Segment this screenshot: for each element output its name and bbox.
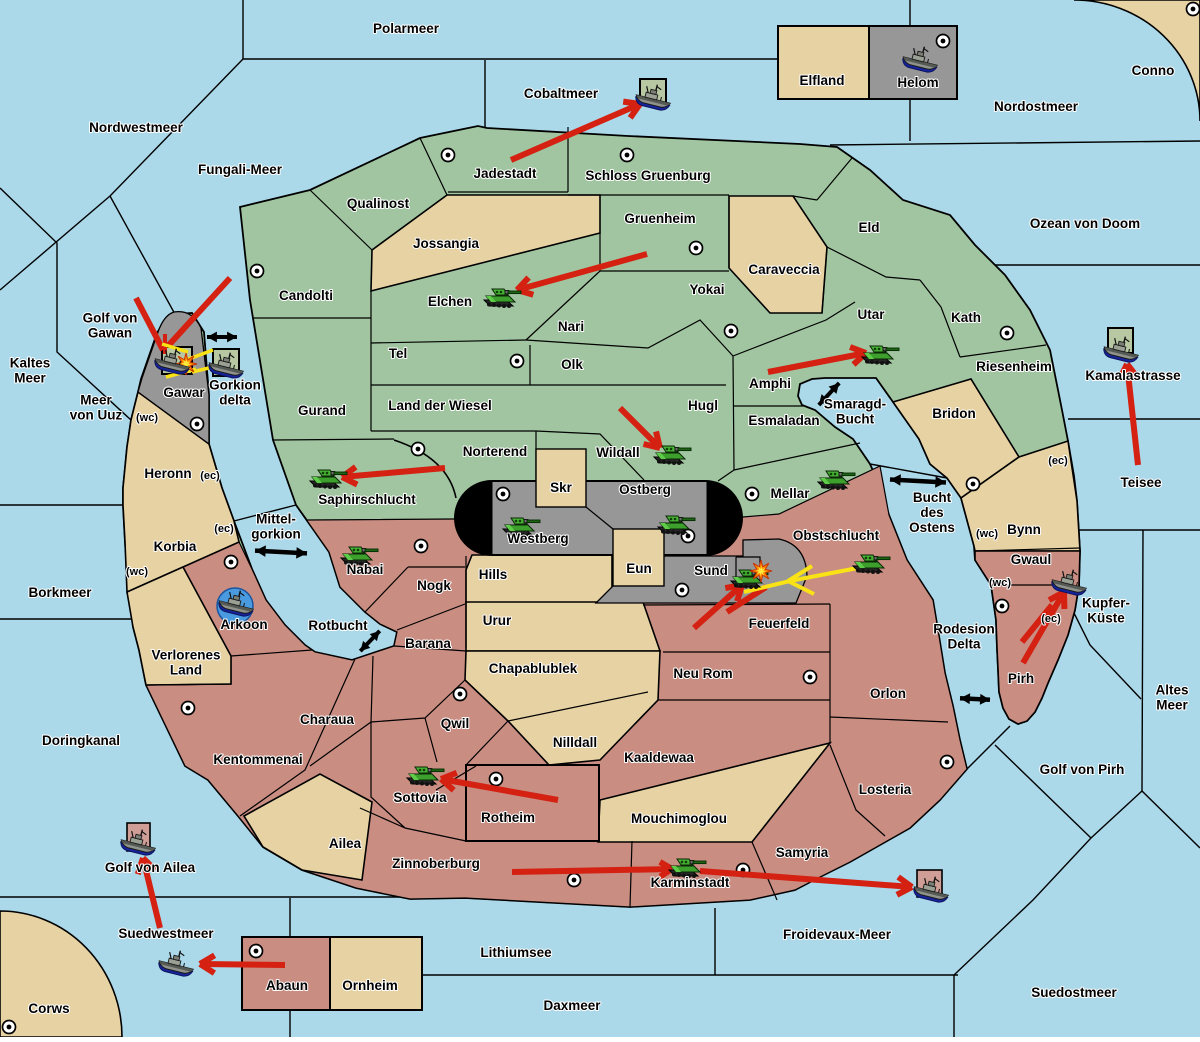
svg-text:Skr: Skr xyxy=(550,480,573,495)
svg-text:Jossangia: Jossangia xyxy=(413,236,480,251)
svg-text:Arkoon: Arkoon xyxy=(220,617,267,632)
svg-text:Riesenheim: Riesenheim xyxy=(976,359,1052,374)
svg-text:(ec): (ec) xyxy=(1048,455,1068,467)
svg-text:Elfland: Elfland xyxy=(799,73,844,88)
svg-text:Doringkanal: Doringkanal xyxy=(42,733,120,748)
svg-text:Westberg: Westberg xyxy=(507,531,568,546)
svg-text:Chapablublek: Chapablublek xyxy=(489,661,578,676)
svg-text:Gwaul: Gwaul xyxy=(1011,552,1052,567)
svg-text:Sund: Sund xyxy=(694,563,728,578)
svg-text:Kaaldewaa: Kaaldewaa xyxy=(624,750,694,765)
svg-text:Gruenheim: Gruenheim xyxy=(624,211,695,226)
svg-text:Wildall: Wildall xyxy=(596,445,639,460)
svg-text:Ornheim: Ornheim xyxy=(342,978,398,993)
svg-text:Abaun: Abaun xyxy=(266,978,308,993)
svg-text:Losteria: Losteria xyxy=(859,782,912,797)
svg-text:Polarmeer: Polarmeer xyxy=(373,21,440,36)
svg-text:Schloss Gruenburg: Schloss Gruenburg xyxy=(585,168,710,183)
svg-text:Nari: Nari xyxy=(558,319,584,334)
svg-text:Pirh: Pirh xyxy=(1008,671,1034,686)
svg-text:Norterend: Norterend xyxy=(463,444,528,459)
svg-text:Feuerfeld: Feuerfeld xyxy=(749,616,810,631)
svg-text:Hills: Hills xyxy=(479,567,508,582)
svg-text:Tel: Tel xyxy=(389,346,408,361)
svg-text:Qwil: Qwil xyxy=(441,716,470,731)
svg-text:Daxmeer: Daxmeer xyxy=(543,998,601,1013)
svg-text:Gawar: Gawar xyxy=(163,385,205,400)
svg-text:Bynn: Bynn xyxy=(1007,522,1041,537)
svg-text:Qualinost: Qualinost xyxy=(347,196,410,211)
svg-text:Nordostmeer: Nordostmeer xyxy=(994,99,1079,114)
svg-text:Kentommenai: Kentommenai xyxy=(213,752,302,767)
svg-text:Gurand: Gurand xyxy=(298,403,346,418)
svg-text:Froidevaux-Meer: Froidevaux-Meer xyxy=(783,927,892,942)
svg-text:Jadestadt: Jadestadt xyxy=(473,166,537,181)
svg-text:AltesMeer: AltesMeer xyxy=(1155,683,1188,713)
svg-text:Golf vonGawan: Golf vonGawan xyxy=(83,311,138,341)
svg-text:(wc): (wc) xyxy=(136,412,158,424)
svg-text:Teisee: Teisee xyxy=(1120,475,1162,490)
svg-text:Borkmeer: Borkmeer xyxy=(28,585,92,600)
svg-text:Utar: Utar xyxy=(857,307,885,322)
svg-text:Saphirschlucht: Saphirschlucht xyxy=(318,492,416,507)
svg-text:Neu Rom: Neu Rom xyxy=(673,666,732,681)
svg-text:(ec): (ec) xyxy=(214,523,234,535)
svg-text:Elchen: Elchen xyxy=(428,294,472,309)
svg-text:Nilldall: Nilldall xyxy=(553,735,597,750)
svg-text:Amphi: Amphi xyxy=(749,376,791,391)
svg-text:Kamalastrasse: Kamalastrasse xyxy=(1085,368,1181,383)
svg-text:Nabai: Nabai xyxy=(347,562,384,577)
svg-text:Nogk: Nogk xyxy=(417,578,451,593)
svg-text:Orlon: Orlon xyxy=(870,686,906,701)
svg-text:Land der Wiesel: Land der Wiesel xyxy=(388,398,491,413)
svg-text:Olk: Olk xyxy=(561,357,583,372)
svg-text:(ec): (ec) xyxy=(1041,613,1061,625)
svg-text:Charaua: Charaua xyxy=(300,712,355,727)
svg-text:KaltesMeer: KaltesMeer xyxy=(10,356,51,386)
svg-text:Helom: Helom xyxy=(897,75,938,90)
svg-text:Mittel-gorkion: Mittel-gorkion xyxy=(251,512,301,542)
svg-text:Ostberg: Ostberg xyxy=(619,482,671,497)
svg-text:Eun: Eun xyxy=(626,561,652,576)
svg-text:Mouchimoglou: Mouchimoglou xyxy=(631,811,727,826)
svg-text:Kath: Kath xyxy=(951,310,981,325)
svg-text:Ailea: Ailea xyxy=(329,836,362,851)
svg-text:Corws: Corws xyxy=(28,1001,69,1016)
svg-text:Eld: Eld xyxy=(858,220,879,235)
svg-text:Candolti: Candolti xyxy=(279,288,333,303)
svg-text:Suedwestmeer: Suedwestmeer xyxy=(118,926,214,941)
svg-text:Kupfer-Küste: Kupfer-Küste xyxy=(1082,596,1130,626)
svg-text:Yokai: Yokai xyxy=(689,282,724,297)
svg-text:Lithiumsee: Lithiumsee xyxy=(480,945,552,960)
svg-text:Fungali-Meer: Fungali-Meer xyxy=(198,162,283,177)
svg-text:(wc): (wc) xyxy=(126,566,148,578)
svg-text:Ozean von Doom: Ozean von Doom xyxy=(1030,216,1140,231)
svg-text:Suedostmeer: Suedostmeer xyxy=(1031,985,1117,1000)
svg-text:Samyria: Samyria xyxy=(776,845,829,860)
svg-text:Nordwestmeer: Nordwestmeer xyxy=(89,120,184,135)
svg-text:Golf von Ailea: Golf von Ailea xyxy=(105,860,196,875)
svg-text:Sottovia: Sottovia xyxy=(393,790,447,805)
svg-text:Hugl: Hugl xyxy=(688,398,718,413)
svg-text:Cobaltmeer: Cobaltmeer xyxy=(524,86,599,101)
svg-text:Barana: Barana xyxy=(405,636,451,651)
svg-text:Rotheim: Rotheim xyxy=(481,810,535,825)
svg-text:Bridon: Bridon xyxy=(932,406,976,421)
svg-text:Heronn: Heronn xyxy=(144,466,191,481)
svg-text:Zinnoberburg: Zinnoberburg xyxy=(392,856,480,871)
svg-text:(wc): (wc) xyxy=(989,577,1011,589)
svg-text:Urur: Urur xyxy=(483,613,512,628)
svg-text:Obstschlucht: Obstschlucht xyxy=(793,528,880,543)
svg-text:Mellar: Mellar xyxy=(770,486,810,501)
svg-text:(ec): (ec) xyxy=(200,470,220,482)
svg-text:Esmaladan: Esmaladan xyxy=(748,413,819,428)
svg-text:Golf von Pirh: Golf von Pirh xyxy=(1040,762,1125,777)
svg-text:Conno: Conno xyxy=(1132,63,1175,78)
svg-text:Karminstadt: Karminstadt xyxy=(651,875,730,890)
svg-text:Caraveccia: Caraveccia xyxy=(748,262,820,277)
svg-text:Korbia: Korbia xyxy=(154,539,197,554)
svg-text:Rotbucht: Rotbucht xyxy=(308,618,368,633)
svg-text:(wc): (wc) xyxy=(976,528,998,540)
